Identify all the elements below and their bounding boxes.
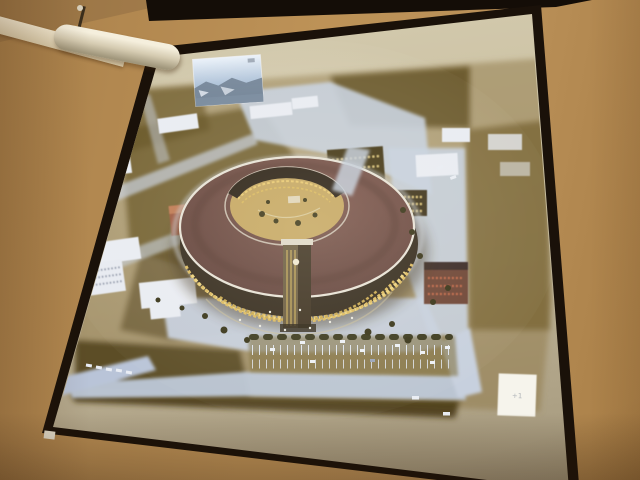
projector-glow [60,40,560,420]
slide-corner-box: +1 [497,373,536,416]
screen-corner-tag [44,430,56,439]
room-photo: +1 [0,0,640,480]
screen-mount-knob [77,5,83,11]
corner-box-mark: +1 [512,392,523,400]
